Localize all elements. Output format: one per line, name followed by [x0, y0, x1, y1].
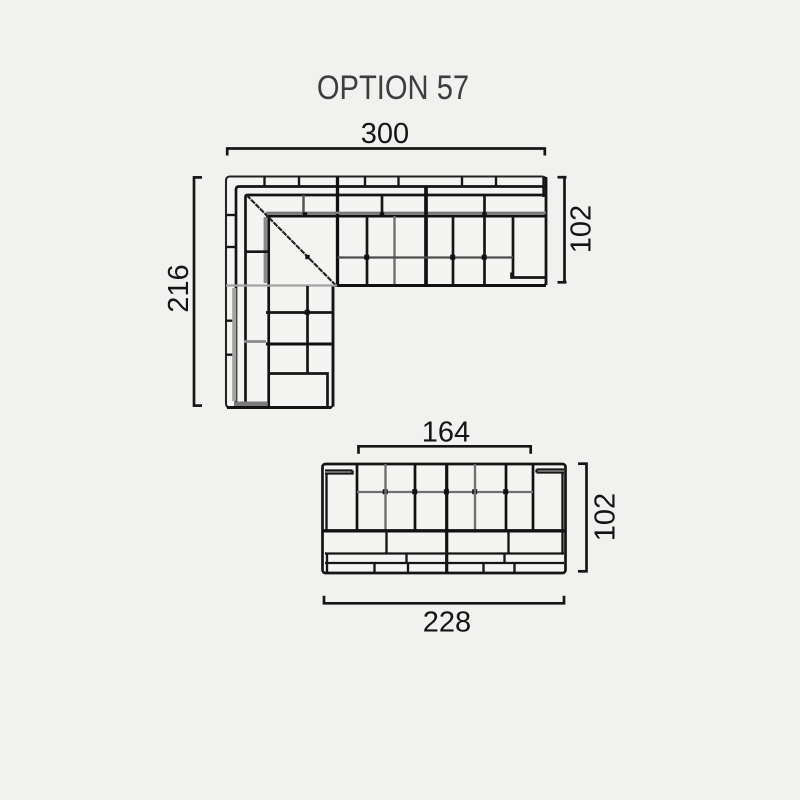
svg-text:102: 102	[590, 493, 622, 541]
svg-text:164: 164	[422, 417, 470, 449]
svg-text:102: 102	[566, 205, 598, 253]
svg-text:216: 216	[163, 264, 195, 312]
svg-text:300: 300	[361, 118, 409, 150]
svg-text:OPTION 57: OPTION 57	[317, 68, 469, 107]
svg-text:228: 228	[423, 607, 471, 639]
